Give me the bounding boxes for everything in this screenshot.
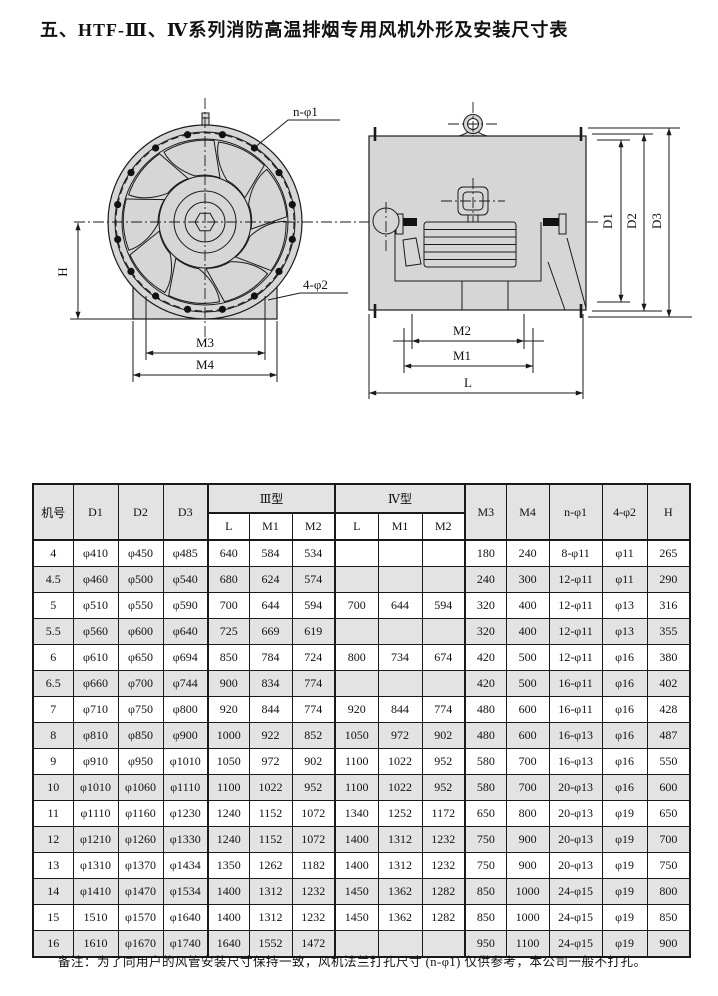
- table-cell: 420: [465, 645, 506, 671]
- table-cell: 6: [33, 645, 73, 671]
- table-cell: φ744: [163, 671, 208, 697]
- table-header: 机号 D1 D2 D3 Ⅲ型 Ⅳ型 M3 M4 n-φ1 4-φ2 H L M1…: [33, 484, 690, 540]
- n-phi1-callout: n-φ1: [254, 104, 340, 148]
- table-cell: 500: [506, 671, 549, 697]
- table-cell: φ650: [118, 645, 163, 671]
- table-cell: φ410: [73, 540, 118, 567]
- table-cell: φ450: [118, 540, 163, 567]
- table-cell: 20-φ13: [549, 827, 602, 853]
- table-cell: 900: [506, 827, 549, 853]
- table-row: 151510φ1570φ1640140013121232145013621282…: [33, 905, 690, 931]
- table-cell: 1400: [208, 905, 249, 931]
- table-cell: 265: [647, 540, 690, 567]
- header-d2: D2: [118, 484, 163, 540]
- table-cell: 9: [33, 749, 73, 775]
- table-cell: 1100: [335, 749, 378, 775]
- table-cell: 1450: [335, 905, 378, 931]
- table-cell: 700: [506, 749, 549, 775]
- footnote: 备注：为了同用户的风管安装尺寸保持一致，风机法兰打孔尺寸 (n-φ1) 仅供参考…: [58, 951, 646, 970]
- table-cell: 500: [506, 645, 549, 671]
- d1-dimension-label: D1: [600, 213, 615, 229]
- table-cell: 902: [422, 723, 465, 749]
- bolt-hole: [152, 292, 159, 299]
- table-row: 4φ410φ450φ4856405845341802408-φ11φ11265: [33, 540, 690, 567]
- table-cell: φ1010: [73, 775, 118, 801]
- bolt-hole: [127, 169, 134, 176]
- technical-drawing: H M3 M4 n-φ1 4-φ2: [0, 0, 718, 432]
- table-cell: 725: [208, 619, 249, 645]
- table-row: 12φ1210φ1260φ133012401152107214001312123…: [33, 827, 690, 853]
- table-cell: 1152: [249, 801, 292, 827]
- table-cell: 1510: [73, 905, 118, 931]
- table-cell: 402: [647, 671, 690, 697]
- table-cell: 1072: [292, 801, 335, 827]
- table-cell: 12-φ11: [549, 567, 602, 593]
- table-cell: φ16: [602, 671, 647, 697]
- table-cell: φ11: [602, 567, 647, 593]
- table-cell: 784: [249, 645, 292, 671]
- subheader-l4: L: [335, 513, 378, 540]
- table-cell: 1000: [506, 879, 549, 905]
- h-dimension-label: H: [55, 267, 70, 276]
- table-row: 8φ810φ850φ900100092285210509729024806001…: [33, 723, 690, 749]
- table-cell: φ950: [118, 749, 163, 775]
- table-cell: 1022: [249, 775, 292, 801]
- table-cell: 420: [465, 671, 506, 697]
- m3-dimension: M3: [146, 335, 265, 353]
- table-cell: 12: [33, 827, 73, 853]
- table-cell: 1362: [378, 879, 422, 905]
- table-cell: 800: [647, 879, 690, 905]
- table-cell: 20-φ13: [549, 801, 602, 827]
- table-cell: [335, 540, 378, 567]
- header-type4: Ⅳ型: [335, 484, 465, 513]
- table-cell: 8-φ11: [549, 540, 602, 567]
- table-cell: 480: [465, 697, 506, 723]
- table-cell: 316: [647, 593, 690, 619]
- table-cell: φ540: [163, 567, 208, 593]
- table-cell: 920: [208, 697, 249, 723]
- table-cell: 480: [465, 723, 506, 749]
- table-cell: 1172: [422, 801, 465, 827]
- table-cell: 850: [465, 905, 506, 931]
- d2-dimension-label: D2: [624, 213, 639, 229]
- table-cell: 11: [33, 801, 73, 827]
- table-cell: 850: [465, 879, 506, 905]
- table-row: 13φ1310φ1370φ143413501262118214001312123…: [33, 853, 690, 879]
- table-cell: 900: [208, 671, 249, 697]
- bolt-hole: [251, 292, 258, 299]
- table-cell: 1262: [249, 853, 292, 879]
- table-cell: 12-φ11: [549, 593, 602, 619]
- table-cell: 1072: [292, 827, 335, 853]
- table-cell: 644: [249, 593, 292, 619]
- table-cell: [378, 540, 422, 567]
- table-cell: 680: [208, 567, 249, 593]
- bolt-hole: [184, 306, 191, 313]
- table-row: 5.5φ560φ600φ64072566961932040012-φ11φ133…: [33, 619, 690, 645]
- table-cell: 180: [465, 540, 506, 567]
- table-cell: φ16: [602, 775, 647, 801]
- bolt-hole: [219, 306, 226, 313]
- table-cell: φ560: [73, 619, 118, 645]
- table-cell: 640: [208, 540, 249, 567]
- table-cell: 952: [422, 749, 465, 775]
- table-cell: 774: [292, 671, 335, 697]
- table-cell: φ1470: [118, 879, 163, 905]
- table-cell: 1450: [335, 879, 378, 905]
- table-cell: 16-φ13: [549, 749, 602, 775]
- table-cell: 380: [647, 645, 690, 671]
- bolt-hole: [289, 201, 296, 208]
- table-cell: [335, 671, 378, 697]
- table-cell: φ710: [73, 697, 118, 723]
- table-cell: 844: [378, 697, 422, 723]
- table-cell: 600: [506, 697, 549, 723]
- table-cell: φ13: [602, 619, 647, 645]
- table-cell: φ1570: [118, 905, 163, 931]
- table-cell: φ910: [73, 749, 118, 775]
- table-cell: φ810: [73, 723, 118, 749]
- catalog-page: 五、HTF-Ⅲ、Ⅳ系列消防高温排烟专用风机外形及安装尺寸表: [0, 0, 718, 996]
- table-cell: 20-φ13: [549, 775, 602, 801]
- table-cell: 1232: [292, 905, 335, 931]
- table-cell: φ1640: [163, 905, 208, 931]
- table-cell: 1282: [422, 905, 465, 931]
- bolt-hole: [114, 236, 121, 243]
- table-cell: 1240: [208, 827, 249, 853]
- table-cell: 750: [465, 827, 506, 853]
- table-row: 11φ1110φ1160φ123012401152107213401252117…: [33, 801, 690, 827]
- table-cell: 5: [33, 593, 73, 619]
- table-cell: 1362: [378, 905, 422, 931]
- table-cell: 774: [422, 697, 465, 723]
- table-cell: 4: [33, 540, 73, 567]
- right-bearing-plate: [559, 214, 566, 234]
- m3-dimension-label: M3: [196, 335, 214, 350]
- table-cell: 12-φ11: [549, 645, 602, 671]
- table-cell: 900: [647, 931, 690, 958]
- table-cell: 1050: [335, 723, 378, 749]
- bolt-hole: [275, 268, 282, 275]
- table-cell: 834: [249, 671, 292, 697]
- table-cell: 24-φ15: [549, 905, 602, 931]
- header-4-phi2: 4-φ2: [602, 484, 647, 540]
- table-cell: 774: [292, 697, 335, 723]
- header-h: H: [647, 484, 690, 540]
- table-cell: φ660: [73, 671, 118, 697]
- table-cell: 355: [647, 619, 690, 645]
- table-cell: 1022: [378, 775, 422, 801]
- table-cell: 20-φ13: [549, 853, 602, 879]
- table-cell: 1152: [249, 827, 292, 853]
- table-cell: 16-φ13: [549, 723, 602, 749]
- table-cell: φ1310: [73, 853, 118, 879]
- four-phi2-label: 4-φ2: [303, 277, 328, 292]
- table-cell: 922: [249, 723, 292, 749]
- m1-dimension-label: M1: [453, 348, 471, 363]
- table-cell: 1312: [249, 879, 292, 905]
- table-cell: 619: [292, 619, 335, 645]
- table-cell: φ1370: [118, 853, 163, 879]
- table-cell: 734: [378, 645, 422, 671]
- table-cell: 8: [33, 723, 73, 749]
- table-cell: 320: [465, 619, 506, 645]
- table-cell: [422, 619, 465, 645]
- table-cell: [378, 619, 422, 645]
- table-cell: [422, 540, 465, 567]
- header-type3: Ⅲ型: [208, 484, 335, 513]
- table-cell: 24-φ15: [549, 879, 602, 905]
- table-cell: φ694: [163, 645, 208, 671]
- table-cell: φ1110: [163, 775, 208, 801]
- table-cell: 644: [378, 593, 422, 619]
- table-cell: φ500: [118, 567, 163, 593]
- table-cell: φ1534: [163, 879, 208, 905]
- table-cell: [335, 619, 378, 645]
- table-cell: 650: [465, 801, 506, 827]
- table-cell: 1100: [208, 775, 249, 801]
- table-cell: 669: [249, 619, 292, 645]
- header-d3: D3: [163, 484, 208, 540]
- table-cell: φ510: [73, 593, 118, 619]
- bolt-hole: [127, 268, 134, 275]
- table-cell: 972: [378, 723, 422, 749]
- n-phi1-label: n-φ1: [293, 104, 318, 119]
- table-cell: 700: [647, 827, 690, 853]
- table-cell: 1232: [422, 827, 465, 853]
- table-cell: φ11: [602, 540, 647, 567]
- table-cell: φ19: [602, 801, 647, 827]
- table-cell: 10: [33, 775, 73, 801]
- table-cell: 290: [647, 567, 690, 593]
- d3-dimension-label: D3: [649, 213, 664, 229]
- table-cell: 750: [647, 853, 690, 879]
- table-cell: [378, 567, 422, 593]
- table-cell: 400: [506, 593, 549, 619]
- dimension-table-body: 4φ410φ450φ4856405845341802408-φ11φ112654…: [33, 540, 690, 957]
- table-cell: 1182: [292, 853, 335, 879]
- header-m4: M4: [506, 484, 549, 540]
- table-cell: 12-φ11: [549, 619, 602, 645]
- table-cell: 1232: [292, 879, 335, 905]
- table-cell: 550: [647, 749, 690, 775]
- table-cell: φ800: [163, 697, 208, 723]
- table-cell: φ16: [602, 723, 647, 749]
- table-cell: [335, 567, 378, 593]
- l-dimension-label: L: [464, 375, 472, 390]
- table-cell: [422, 671, 465, 697]
- table-cell: 952: [422, 775, 465, 801]
- table-cell: 1312: [249, 905, 292, 931]
- table-cell: 6.5: [33, 671, 73, 697]
- table-cell: 580: [465, 749, 506, 775]
- table-cell: 400: [506, 619, 549, 645]
- table-cell: 1232: [422, 853, 465, 879]
- leader-line: [254, 120, 340, 148]
- table-cell: 240: [465, 567, 506, 593]
- table-cell: φ600: [118, 619, 163, 645]
- table-cell: 1252: [378, 801, 422, 827]
- table-row: 9φ910φ950φ101010509729021100102295258070…: [33, 749, 690, 775]
- table-cell: φ750: [118, 697, 163, 723]
- table-cell: 700: [506, 775, 549, 801]
- table-cell: 14: [33, 879, 73, 905]
- table-cell: 594: [292, 593, 335, 619]
- table-cell: 534: [292, 540, 335, 567]
- table-cell: 574: [292, 567, 335, 593]
- l-dimension: L: [369, 314, 583, 399]
- m2-dimension-label: M2: [453, 323, 471, 338]
- table-cell: 1400: [335, 853, 378, 879]
- bolt-hole: [114, 201, 121, 208]
- table-cell: 600: [506, 723, 549, 749]
- table-cell: 1022: [378, 749, 422, 775]
- subheader-m1-3: M1: [249, 513, 292, 540]
- table-cell: 952: [292, 775, 335, 801]
- table-cell: 580: [465, 775, 506, 801]
- table-cell: φ640: [163, 619, 208, 645]
- table-cell: 972: [249, 749, 292, 775]
- table-cell: φ13: [602, 593, 647, 619]
- table-cell: φ19: [602, 827, 647, 853]
- bolt-hole: [219, 131, 226, 138]
- table-cell: φ1210: [73, 827, 118, 853]
- table-cell: 600: [647, 775, 690, 801]
- table-cell: 800: [335, 645, 378, 671]
- table-row: 5φ510φ550φ59070064459470064459432040012-…: [33, 593, 690, 619]
- table-cell: φ19: [602, 879, 647, 905]
- table-cell: 1100: [335, 775, 378, 801]
- table-cell: 16-φ11: [549, 671, 602, 697]
- table-cell: [422, 567, 465, 593]
- table-row: 4.5φ460φ500φ54068062457424030012-φ11φ112…: [33, 567, 690, 593]
- table-row: 6.5φ660φ700φ74490083477442050016-φ11φ164…: [33, 671, 690, 697]
- table-cell: 1282: [422, 879, 465, 905]
- table-cell: 1400: [208, 879, 249, 905]
- table-cell: φ1410: [73, 879, 118, 905]
- table-cell: 1400: [335, 827, 378, 853]
- table-cell: 852: [292, 723, 335, 749]
- table-cell: 650: [647, 801, 690, 827]
- header-d1: D1: [73, 484, 118, 540]
- dimension-table: 机号 D1 D2 D3 Ⅲ型 Ⅳ型 M3 M4 n-φ1 4-φ2 H L M1…: [32, 483, 691, 958]
- subheader-l3: L: [208, 513, 249, 540]
- table-cell: φ1060: [118, 775, 163, 801]
- table-row: 6φ610φ650φ69485078472480073467442050012-…: [33, 645, 690, 671]
- table-cell: 724: [292, 645, 335, 671]
- table-cell: 1000: [208, 723, 249, 749]
- table-cell: 902: [292, 749, 335, 775]
- table-cell: 584: [249, 540, 292, 567]
- table-cell: φ1110: [73, 801, 118, 827]
- table-cell: 4.5: [33, 567, 73, 593]
- table-cell: φ16: [602, 749, 647, 775]
- table-cell: 13: [33, 853, 73, 879]
- table-cell: 674: [422, 645, 465, 671]
- table-cell: φ1010: [163, 749, 208, 775]
- table-cell: 700: [335, 593, 378, 619]
- table-cell: 300: [506, 567, 549, 593]
- table-cell: φ1160: [118, 801, 163, 827]
- bolt-hole: [275, 169, 282, 176]
- table-cell: φ850: [118, 723, 163, 749]
- table-row: 14φ1410φ1470φ153414001312123214501362128…: [33, 879, 690, 905]
- table-cell: 750: [465, 853, 506, 879]
- table-cell: φ1434: [163, 853, 208, 879]
- header-m3: M3: [465, 484, 506, 540]
- subheader-m1-4: M1: [378, 513, 422, 540]
- table-cell: 700: [208, 593, 249, 619]
- table-cell: 1050: [208, 749, 249, 775]
- leader-line: [268, 293, 348, 300]
- table-cell: φ1330: [163, 827, 208, 853]
- table-cell: 1240: [208, 801, 249, 827]
- bolt-hole: [152, 144, 159, 151]
- table-cell: 320: [465, 593, 506, 619]
- table-cell: 7: [33, 697, 73, 723]
- table-cell: 1340: [335, 801, 378, 827]
- table-cell: φ19: [602, 905, 647, 931]
- table-cell: 1000: [506, 905, 549, 931]
- subheader-m2-4: M2: [422, 513, 465, 540]
- table-row: 10φ1010φ1060φ111011001022952110010229525…: [33, 775, 690, 801]
- bolt-hole: [289, 236, 296, 243]
- table-cell: 16-φ11: [549, 697, 602, 723]
- m2-dimension: M2: [412, 314, 524, 349]
- table-cell: φ900: [163, 723, 208, 749]
- table-cell: 5.5: [33, 619, 73, 645]
- header-n-phi1: n-φ1: [549, 484, 602, 540]
- table-cell: 900: [506, 853, 549, 879]
- table-cell: φ550: [118, 593, 163, 619]
- table-cell: 428: [647, 697, 690, 723]
- table-cell: 850: [647, 905, 690, 931]
- table-cell: φ485: [163, 540, 208, 567]
- table-cell: 487: [647, 723, 690, 749]
- table-cell: 240: [506, 540, 549, 567]
- bolt-hole: [184, 131, 191, 138]
- table-row: 7φ710φ750φ80092084477492084477448060016-…: [33, 697, 690, 723]
- table-cell: 1350: [208, 853, 249, 879]
- table-cell: 1312: [378, 853, 422, 879]
- table-cell: 850: [208, 645, 249, 671]
- header-machine-no: 机号: [33, 484, 73, 540]
- table-cell: φ610: [73, 645, 118, 671]
- table-cell: 594: [422, 593, 465, 619]
- fan-side-view: D1 D2 D3 M2: [369, 102, 692, 399]
- subheader-m2-3: M2: [292, 513, 335, 540]
- table-cell: φ1260: [118, 827, 163, 853]
- table-cell: 1312: [378, 827, 422, 853]
- table-cell: 920: [335, 697, 378, 723]
- table-cell: [378, 671, 422, 697]
- table-cell: φ19: [602, 853, 647, 879]
- table-cell: φ700: [118, 671, 163, 697]
- table-cell: 15: [33, 905, 73, 931]
- table-cell: φ1230: [163, 801, 208, 827]
- table-cell: φ16: [602, 697, 647, 723]
- table-cell: 800: [506, 801, 549, 827]
- table-cell: 844: [249, 697, 292, 723]
- table-cell: φ460: [73, 567, 118, 593]
- table-cell: φ590: [163, 593, 208, 619]
- table-cell: 624: [249, 567, 292, 593]
- m4-dimension-label: M4: [196, 357, 215, 372]
- table-cell: φ16: [602, 645, 647, 671]
